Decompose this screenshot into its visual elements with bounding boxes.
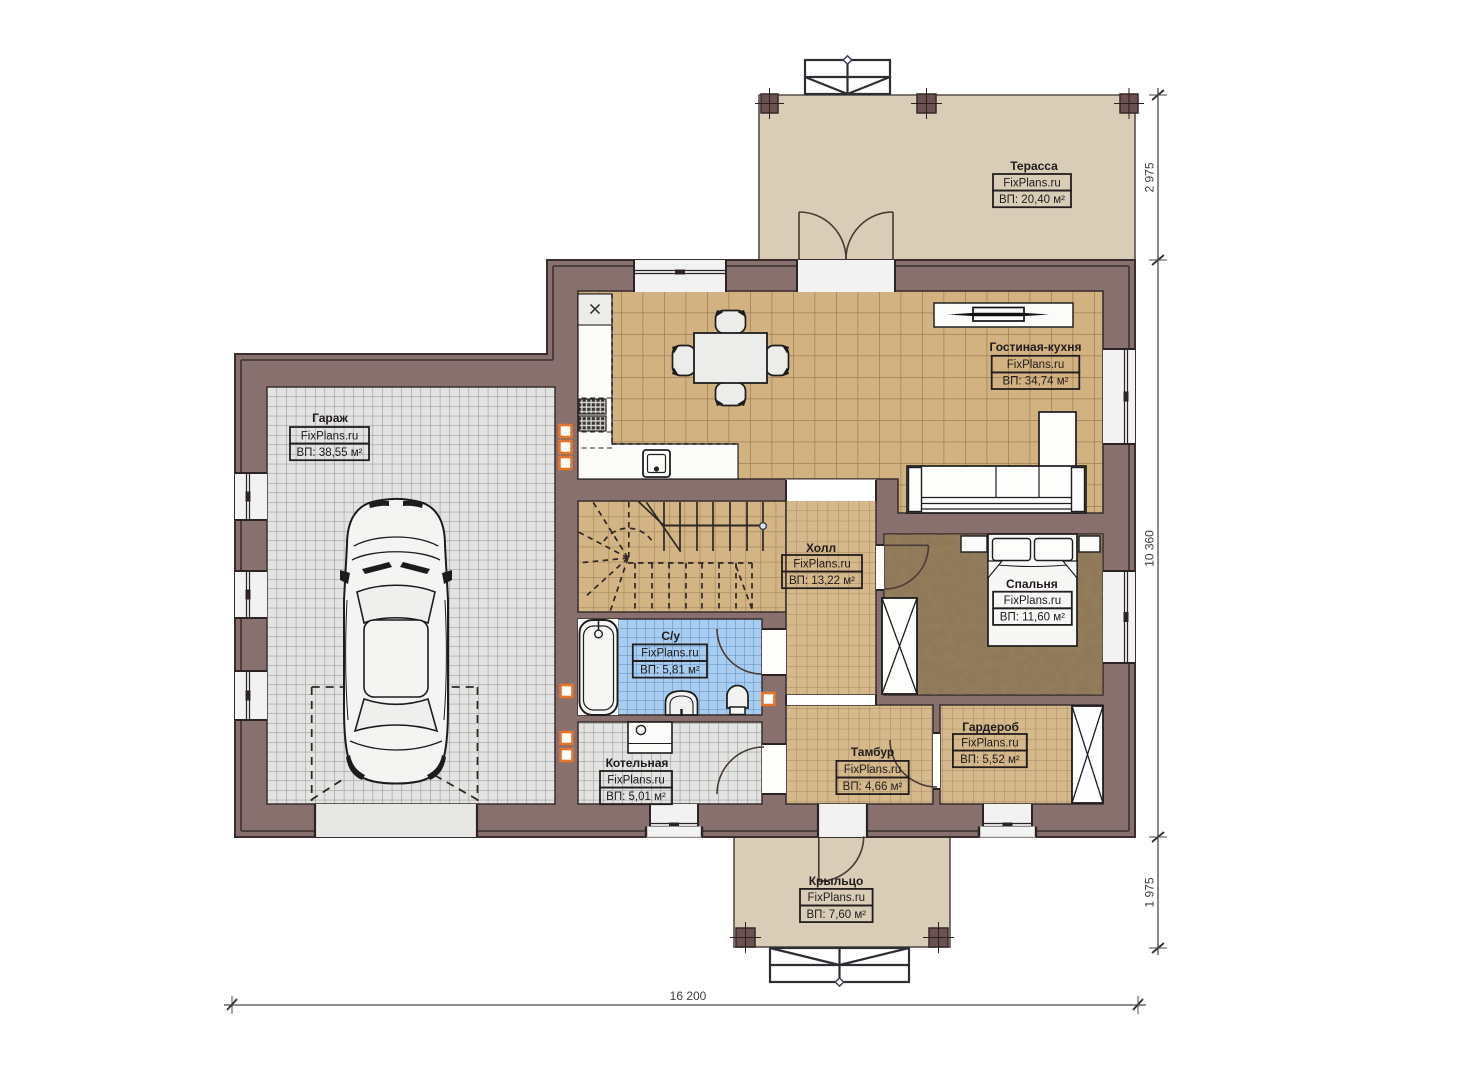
svg-text:FixPlans.ru: FixPlans.ru: [641, 648, 699, 660]
svg-text:Гостиная-кухня: Гостиная-кухня: [990, 340, 1082, 354]
svg-text:ВП: 7,60 м²: ВП: 7,60 м²: [806, 909, 866, 921]
svg-text:Спальня: Спальня: [1006, 577, 1058, 591]
svg-text:ВП: 34,74 м²: ВП: 34,74 м²: [1002, 376, 1068, 388]
svg-text:10 360: 10 360: [1143, 530, 1157, 567]
svg-text:FixPlans.ru: FixPlans.ru: [1004, 595, 1062, 607]
svg-text:FixPlans.ru: FixPlans.ru: [1007, 359, 1065, 371]
svg-text:Холл: Холл: [806, 541, 836, 555]
svg-text:FixPlans.ru: FixPlans.ru: [844, 764, 902, 776]
svg-text:С/у: С/у: [661, 629, 680, 643]
svg-text:ВП: 20,40 м²: ВП: 20,40 м²: [999, 194, 1065, 206]
svg-text:ВП: 5,52 м²: ВП: 5,52 м²: [960, 754, 1020, 766]
svg-text:16 200: 16 200: [670, 989, 707, 1003]
svg-text:1 975: 1 975: [1143, 877, 1157, 907]
svg-text:FixPlans.ru: FixPlans.ru: [607, 774, 665, 786]
svg-text:Крыльцо: Крыльцо: [809, 874, 864, 888]
svg-text:ВП: 13,22 м²: ВП: 13,22 м²: [789, 575, 855, 587]
svg-text:2 975: 2 975: [1143, 162, 1157, 192]
svg-text:ВП: 38,55 м²: ВП: 38,55 м²: [296, 447, 362, 459]
svg-text:FixPlans.ru: FixPlans.ru: [1003, 177, 1061, 189]
svg-text:Тамбур: Тамбур: [851, 745, 895, 759]
svg-text:ВП: 5,01 м²: ВП: 5,01 м²: [606, 791, 666, 803]
svg-text:FixPlans.ru: FixPlans.ru: [301, 430, 359, 442]
svg-text:FixPlans.ru: FixPlans.ru: [793, 558, 851, 570]
svg-text:Котельная: Котельная: [606, 756, 669, 770]
svg-text:Гараж: Гараж: [312, 411, 348, 425]
svg-text:ВП: 4,66 м²: ВП: 4,66 м²: [843, 781, 903, 793]
svg-text:Гардероб: Гардероб: [962, 720, 1019, 734]
svg-text:Терасса: Терасса: [1010, 159, 1058, 173]
svg-text:FixPlans.ru: FixPlans.ru: [961, 737, 1019, 749]
svg-text:ВП: 11,60 м²: ВП: 11,60 м²: [1000, 612, 1065, 624]
svg-text:ВП: 5,81 м²: ВП: 5,81 м²: [640, 664, 700, 676]
svg-text:FixPlans.ru: FixPlans.ru: [808, 892, 866, 904]
